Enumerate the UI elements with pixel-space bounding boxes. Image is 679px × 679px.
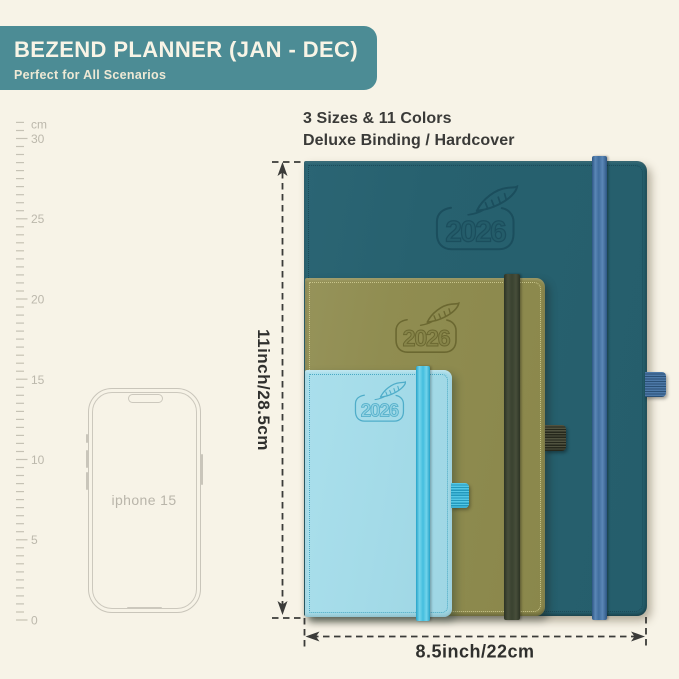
svg-text:25: 25 [31, 212, 45, 226]
svg-text:5: 5 [31, 533, 38, 547]
svg-text:30: 30 [31, 132, 45, 146]
svg-text:15: 15 [31, 373, 45, 387]
svg-text:cm: cm [31, 118, 47, 132]
svg-text:0: 0 [31, 614, 38, 628]
svg-text:10: 10 [31, 453, 45, 467]
svg-text:20: 20 [31, 293, 45, 307]
